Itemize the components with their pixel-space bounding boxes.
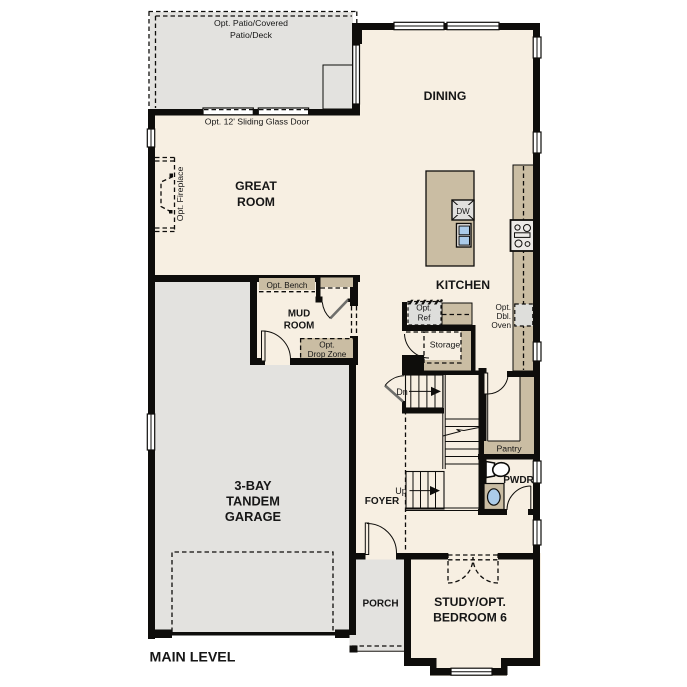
svg-text:ROOM: ROOM [284,321,314,332]
svg-text:MAIN LEVEL: MAIN LEVEL [150,650,236,666]
svg-text:STUDY/OPT.: STUDY/OPT. [434,595,506,609]
svg-text:TANDEM: TANDEM [226,494,280,509]
svg-text:ROOM: ROOM [237,195,275,209]
svg-text:BEDROOM 6: BEDROOM 6 [433,611,507,625]
svg-text:PWDR: PWDR [503,475,534,486]
svg-text:GREAT: GREAT [235,179,277,193]
svg-text:DINING: DINING [424,89,467,103]
svg-text:MUD: MUD [288,309,310,320]
svg-text:Oven: Oven [491,321,511,330]
svg-text:Opt. Patio/Covered: Opt. Patio/Covered [214,18,288,28]
svg-text:Opt.: Opt. [416,304,431,313]
svg-text:PORCH: PORCH [362,599,398,610]
svg-text:Ref: Ref [418,314,431,323]
svg-text:Opt. 12' Sliding Glass Door: Opt. 12' Sliding Glass Door [205,117,310,127]
svg-text:3-BAY: 3-BAY [234,478,272,493]
svg-text:Opt.: Opt. [496,303,511,312]
svg-text:Opt. Bench: Opt. Bench [267,281,308,290]
svg-text:Dbl.: Dbl. [496,312,511,321]
svg-text:FOYER: FOYER [365,496,400,507]
svg-text:Storage: Storage [430,340,461,350]
svg-text:DW: DW [456,207,470,216]
svg-text:GARAGE: GARAGE [225,509,282,524]
svg-text:KITCHEN: KITCHEN [436,278,490,292]
svg-text:Opt. Fireplace: Opt. Fireplace [175,167,185,222]
svg-text:Opt.: Opt. [319,341,334,350]
svg-text:Pantry: Pantry [496,444,522,454]
svg-text:Drop Zone: Drop Zone [308,350,347,359]
svg-text:Patio/Deck: Patio/Deck [230,30,273,40]
